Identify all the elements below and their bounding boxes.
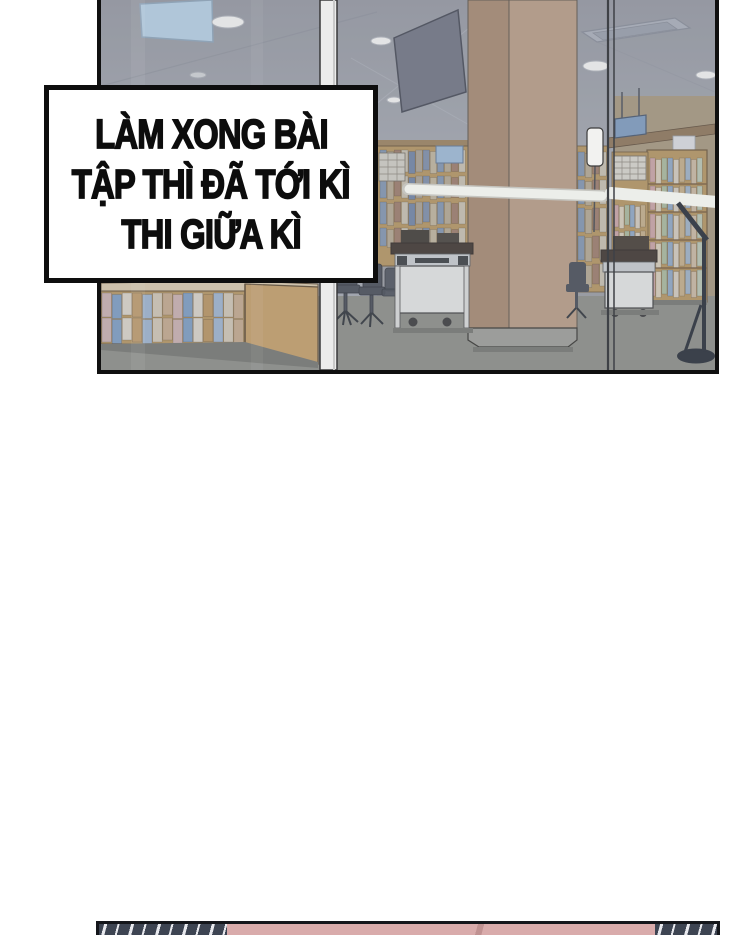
next-panel-strip [96,921,720,935]
next-panel-hatch-right [655,924,717,935]
caption-box: LÀM XONG BÀI TẬP THÌ ĐÃ TỚI KÌ THI GIỮA … [44,85,378,283]
next-panel-hatch-left [99,924,227,935]
webtoon-page: LÀM XONG BÀI TẬP THÌ ĐÃ TỚI KÌ THI GIỮA … [0,0,740,935]
caption-line-2: TẬP THÌ ĐÃ TỚI KÌ [72,159,350,209]
next-panel-pink-line [449,924,509,935]
next-panel-pink-area [227,924,655,935]
caption-line-1: LÀM XONG BÀI [95,109,328,159]
caption-line-3: THI GIỮA KÌ [121,209,300,259]
